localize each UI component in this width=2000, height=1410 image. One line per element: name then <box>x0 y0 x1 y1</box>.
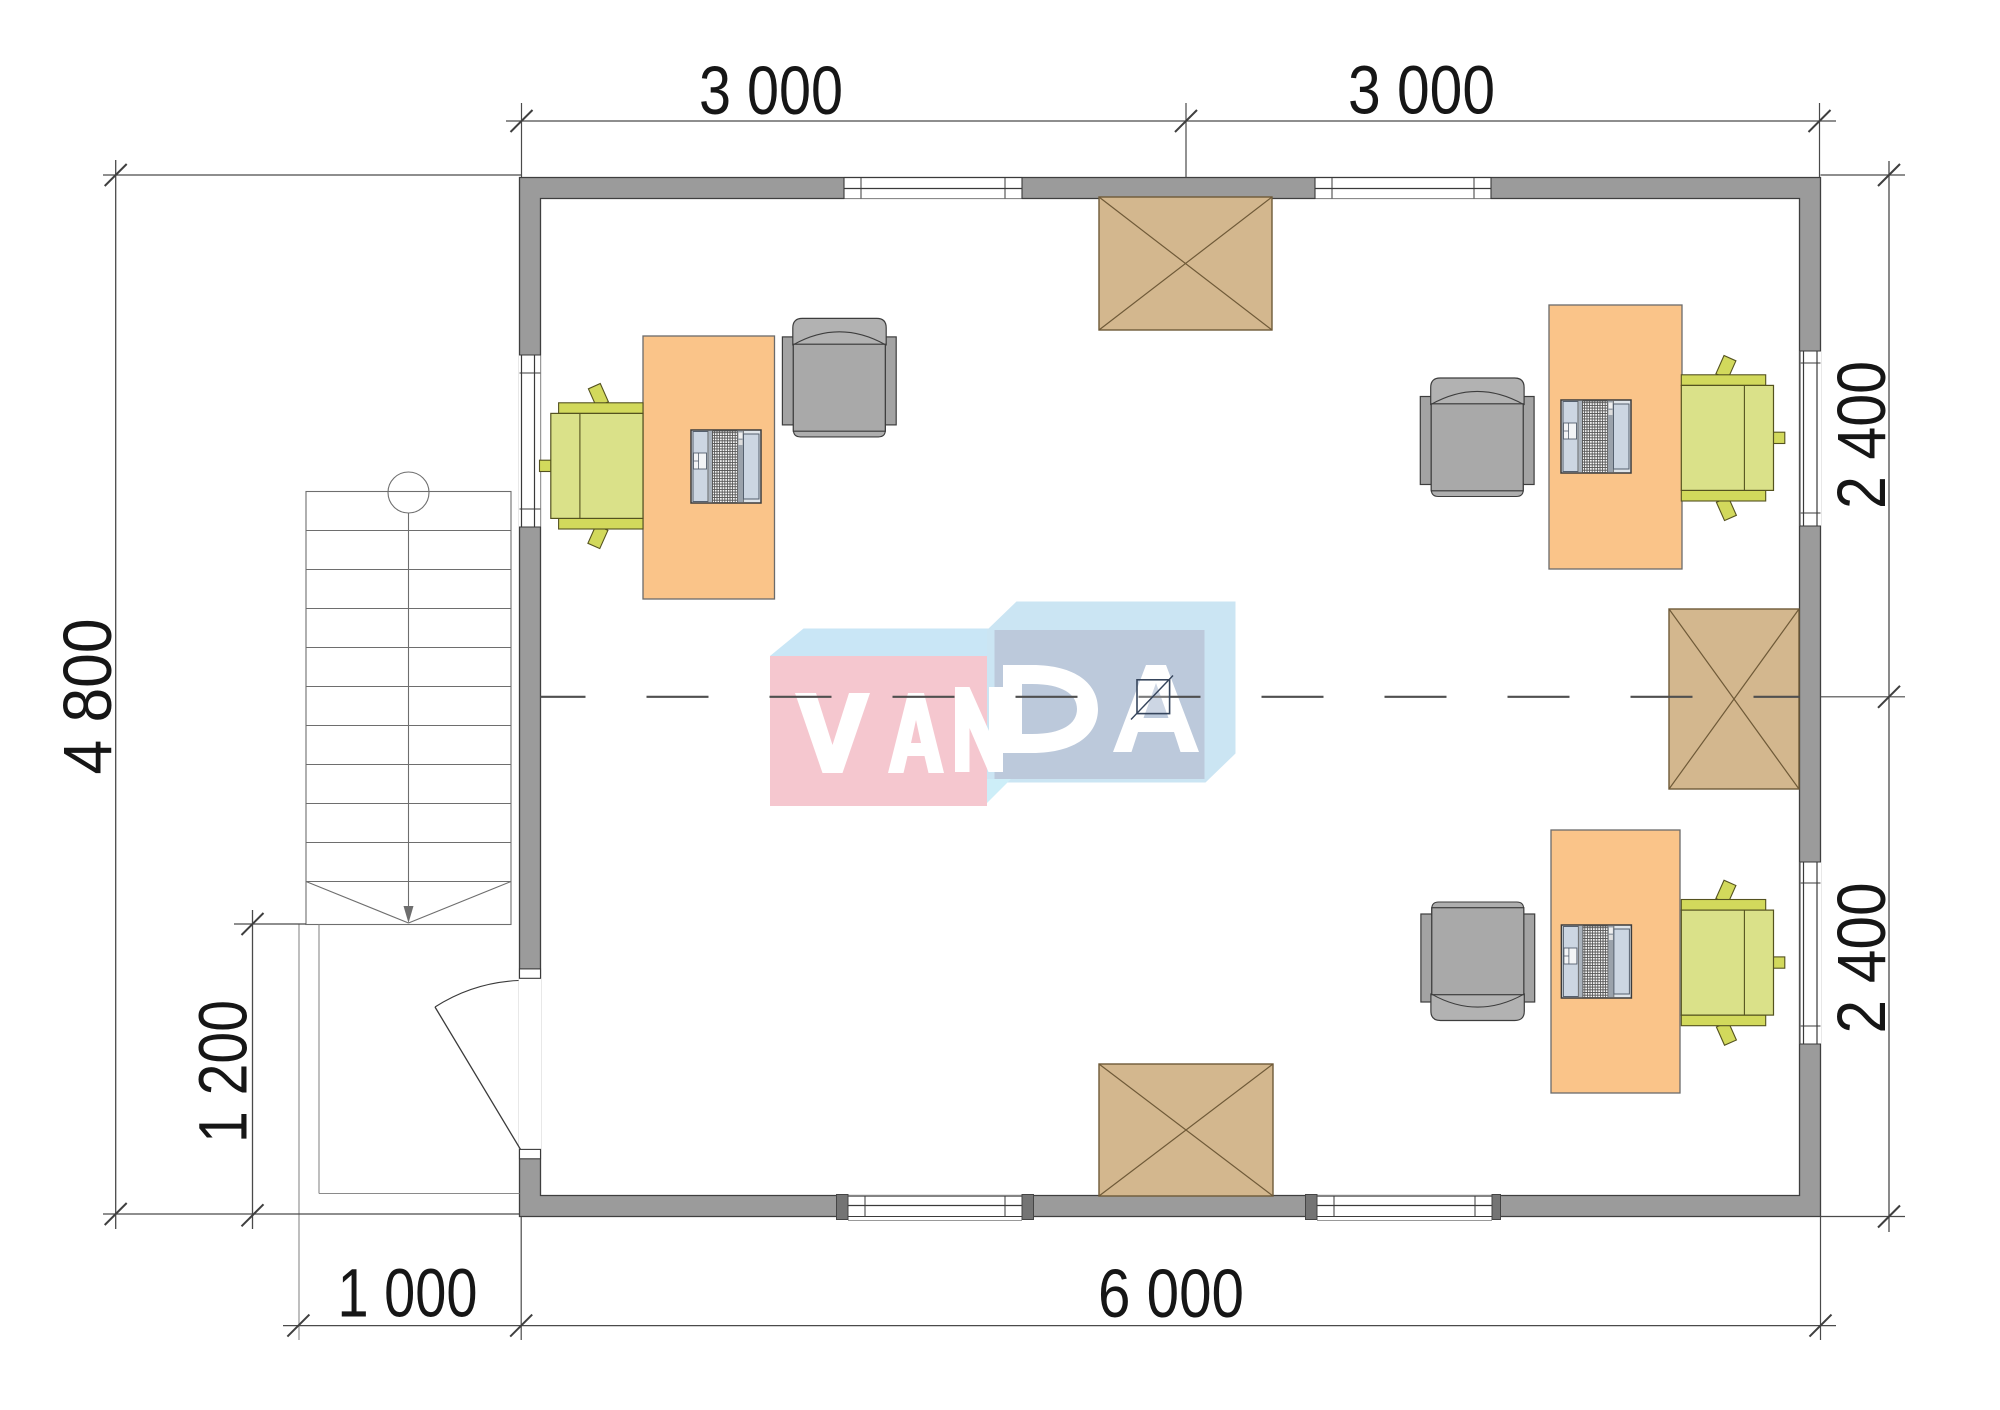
svg-text:6 000: 6 000 <box>1098 1255 1244 1332</box>
svg-text:1 200: 1 200 <box>185 1000 262 1143</box>
svg-text:2 400: 2 400 <box>1823 361 1900 509</box>
svg-text:3 000: 3 000 <box>1348 52 1495 129</box>
svg-text:3 000: 3 000 <box>699 52 843 129</box>
svg-text:4 800: 4 800 <box>49 619 126 775</box>
svg-text:1 000: 1 000 <box>338 1255 478 1332</box>
svg-text:2 400: 2 400 <box>1823 883 1900 1034</box>
